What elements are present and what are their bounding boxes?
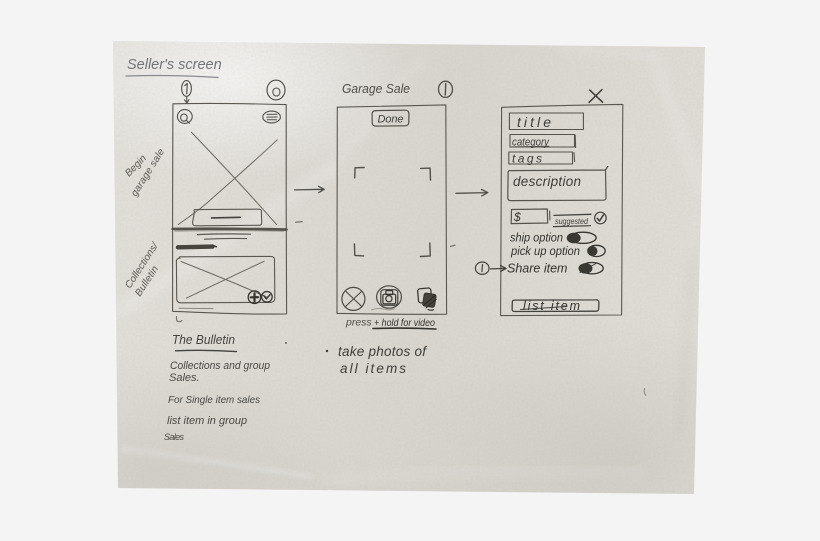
svg-text:ship option: ship option bbox=[510, 231, 563, 245]
svg-text:Sales: Sales bbox=[164, 432, 185, 442]
svg-text:suggested: suggested bbox=[555, 217, 588, 226]
svg-text:Garage Sale: Garage Sale bbox=[342, 81, 410, 96]
svg-text:$: $ bbox=[513, 210, 521, 224]
svg-text:The Bulletin: The Bulletin bbox=[172, 333, 235, 347]
svg-text:all items: all items bbox=[340, 361, 406, 376]
svg-text:Seller's screen: Seller's screen bbox=[127, 57, 222, 73]
svg-text:Share item: Share item bbox=[507, 262, 567, 276]
svg-text:tags: tags bbox=[512, 152, 542, 166]
svg-text:title: title bbox=[517, 114, 551, 130]
svg-text:For Single item sales: For Single item sales bbox=[168, 394, 261, 406]
svg-text:Collections and group: Collections and group bbox=[170, 360, 270, 372]
svg-text:pick up option: pick up option bbox=[510, 244, 580, 258]
svg-text:take photos of: take photos of bbox=[338, 344, 427, 359]
svg-text:Sales.: Sales. bbox=[169, 372, 200, 384]
svg-text:list item in group: list item in group bbox=[167, 415, 247, 427]
svg-text:+ hold for video: + hold for video bbox=[374, 317, 435, 329]
svg-text:press: press bbox=[345, 317, 372, 329]
svg-text:list item: list item bbox=[523, 299, 580, 313]
svg-text:description: description bbox=[513, 174, 581, 189]
svg-text:Done: Done bbox=[378, 114, 404, 126]
